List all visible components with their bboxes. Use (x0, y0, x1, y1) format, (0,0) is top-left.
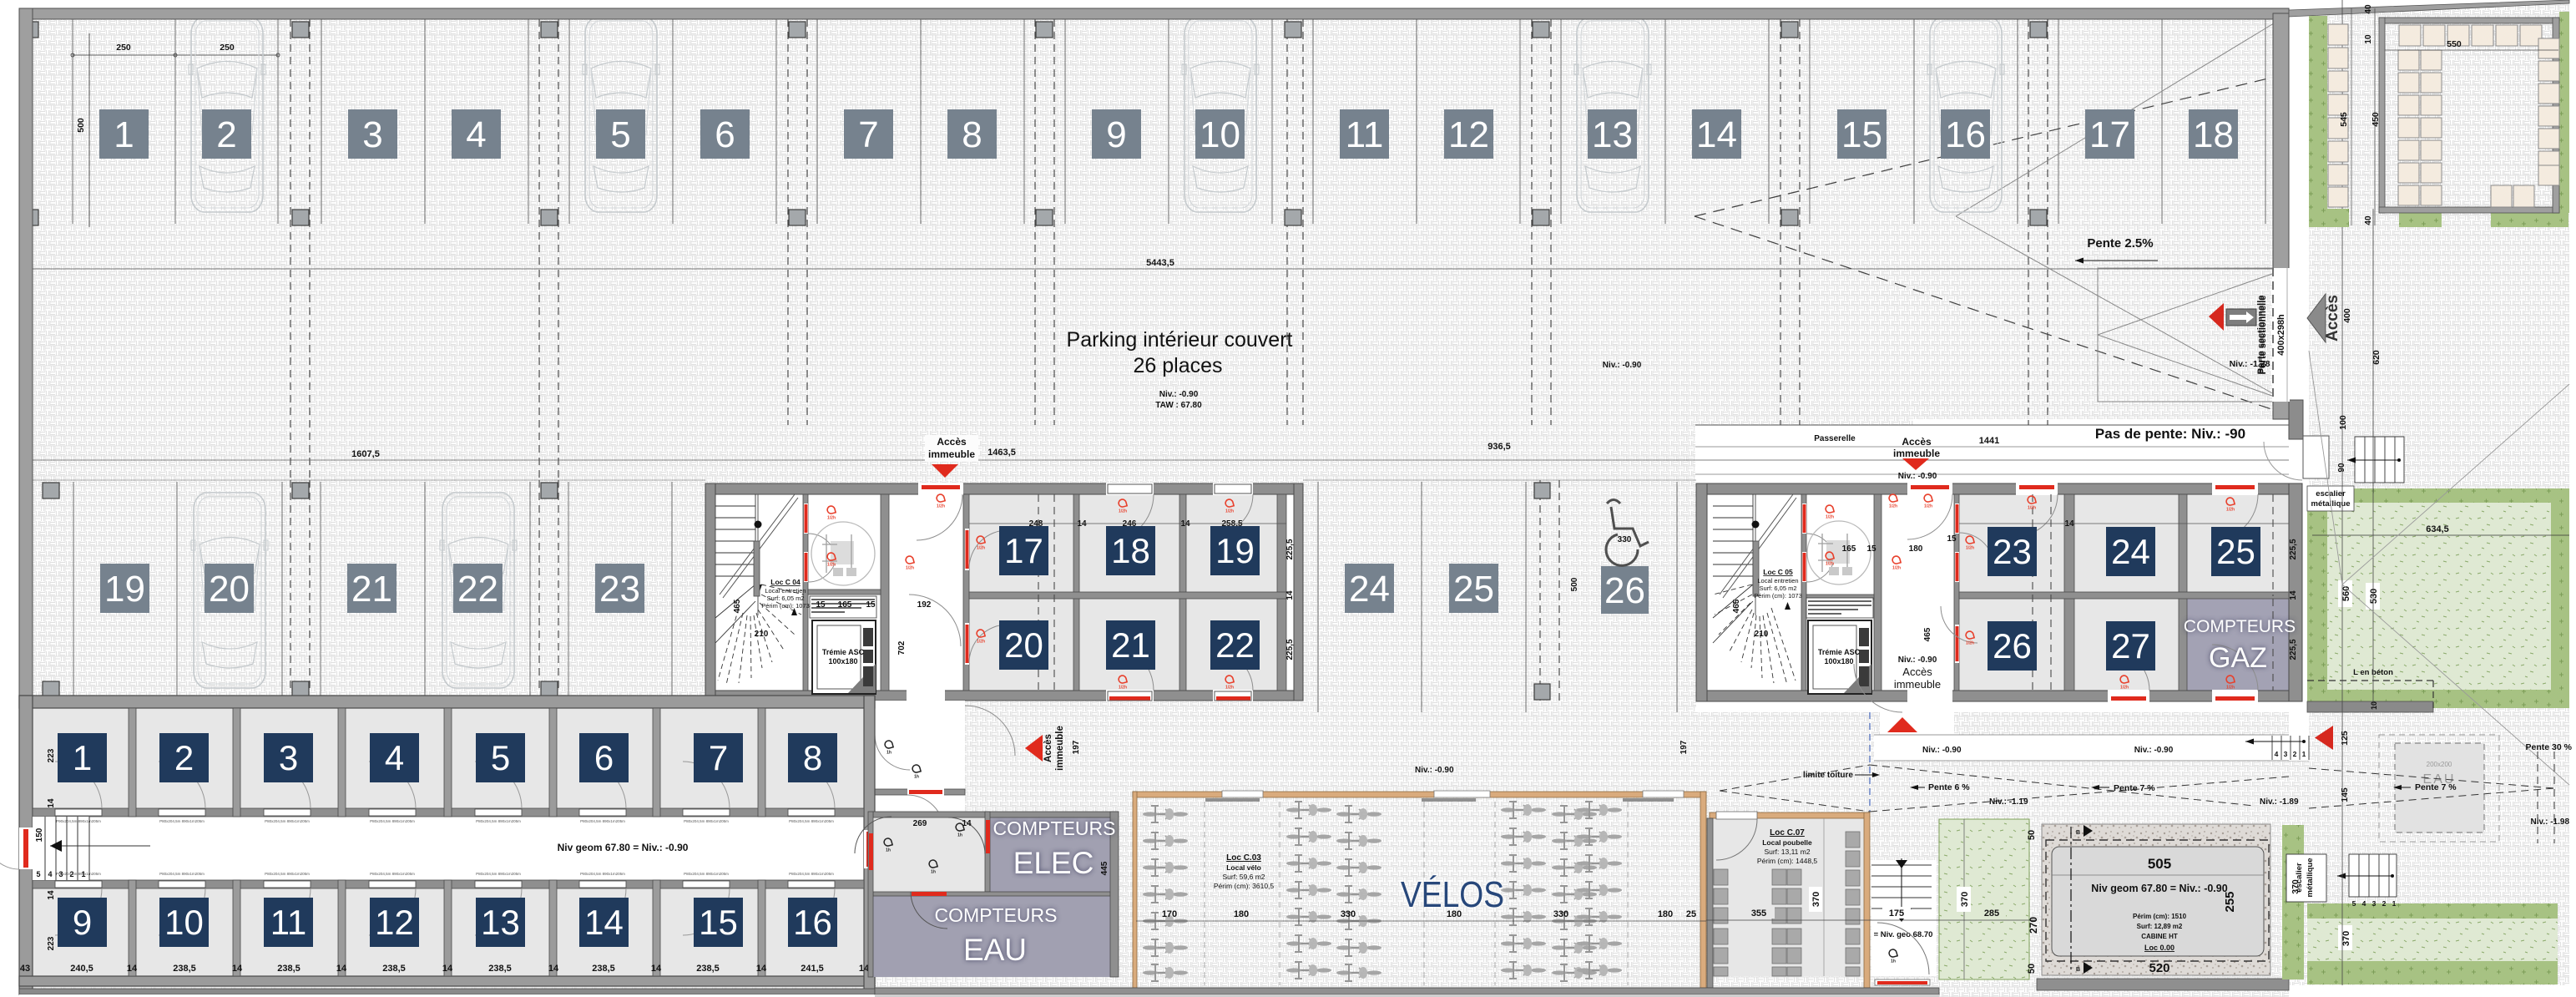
svg-text:Périm (cm): 1448,5: Périm (cm): 1448,5 (1757, 857, 1818, 865)
svg-text:165: 165 (838, 600, 852, 610)
svg-text:210: 210 (755, 630, 769, 639)
svg-text:Niv.: -0.90: Niv.: -0.90 (1415, 766, 1454, 775)
svg-text:Pente 7 %: Pente 7 % (2114, 783, 2155, 793)
svg-text:Loc C.07: Loc C.07 (1770, 828, 1805, 838)
svg-text:Accès: Accès (1902, 666, 1932, 678)
svg-text:Pente 30 %: Pente 30 % (2526, 742, 2573, 752)
svg-text:505: 505 (2148, 856, 2171, 872)
svg-text:21: 21 (351, 569, 392, 610)
svg-text:Périm (cm): 3610,5: Périm (cm): 3610,5 (1214, 882, 1275, 890)
svg-text:P80x204,5m 890x1m205m: P80x204,5m 890x1m205m (789, 872, 834, 876)
svg-text:5: 5 (36, 870, 40, 878)
svg-text:3: 3 (2284, 750, 2288, 758)
svg-text:Niv.: -0.90: Niv.: -0.90 (1898, 655, 1937, 665)
svg-text:Périm (cm): 1510: Périm (cm): 1510 (2133, 913, 2187, 920)
svg-text:25: 25 (1686, 909, 1696, 919)
svg-text:17: 17 (1004, 531, 1043, 570)
svg-text:465: 465 (1732, 599, 1741, 613)
svg-text:27: 27 (2111, 626, 2150, 666)
svg-text:223: 223 (47, 748, 56, 762)
svg-text:165: 165 (1842, 544, 1856, 554)
svg-text:1: 1 (73, 738, 92, 777)
svg-text:4: 4 (2362, 899, 2366, 908)
svg-text:15: 15 (1841, 114, 1882, 155)
svg-text:GAZ: GAZ (2209, 642, 2267, 674)
svg-text:P80x204,5m 890x1m205m: P80x204,5m 890x1m205m (159, 872, 205, 876)
svg-text:Pente 7 %: Pente 7 % (2415, 782, 2457, 792)
svg-text:Niv.: -0.90: Niv.: -0.90 (2134, 746, 2174, 755)
svg-text:250: 250 (116, 43, 131, 53)
svg-text:20: 20 (209, 569, 250, 610)
svg-text:450: 450 (2371, 112, 2381, 127)
svg-text:Niv.: -0.90: Niv.: -0.90 (1159, 390, 1199, 399)
svg-text:5: 5 (2352, 899, 2356, 908)
svg-text:14: 14 (2289, 590, 2298, 600)
svg-text:223: 223 (47, 936, 56, 950)
svg-text:Trémie ASC: Trémie ASC (1818, 648, 1861, 656)
svg-text:4: 4 (2275, 750, 2279, 758)
svg-text:Périm (cm): 1073: Périm (cm): 1073 (761, 602, 810, 610)
svg-text:immeuble: immeuble (1055, 726, 1065, 771)
svg-text:197: 197 (1679, 740, 1689, 754)
svg-text:Niv.: -0.90: Niv.: -0.90 (1898, 472, 1937, 481)
svg-text:22: 22 (457, 569, 498, 610)
svg-text:125: 125 (2340, 731, 2350, 746)
svg-text:8: 8 (962, 114, 982, 155)
svg-text:180: 180 (1447, 909, 1462, 919)
svg-text:Surf: 6,05 m2: Surf: 6,05 m2 (1759, 585, 1796, 592)
svg-text:22: 22 (1215, 625, 1255, 665)
svg-text:400: 400 (2342, 308, 2352, 323)
svg-text:40: 40 (2364, 4, 2373, 14)
svg-text:330: 330 (1618, 535, 1632, 544)
svg-text:23: 23 (1993, 532, 2032, 571)
svg-text:Surf: 12,89 m2: Surf: 12,89 m2 (2137, 923, 2183, 930)
svg-text:445: 445 (1100, 861, 1109, 875)
svg-text:Local entretien: Local entretien (1757, 577, 1798, 585)
svg-text:14: 14 (651, 964, 662, 974)
svg-text:9: 9 (73, 903, 92, 942)
svg-text:1: 1 (114, 114, 134, 155)
svg-text:1463,5: 1463,5 (987, 448, 1016, 458)
svg-text:4: 4 (466, 114, 486, 155)
svg-text:180: 180 (1234, 909, 1249, 919)
svg-text:936,5: 936,5 (1488, 442, 1511, 452)
svg-text:P80x204,5m 890x1m205m: P80x204,5m 890x1m205m (370, 819, 415, 823)
svg-text:500: 500 (76, 118, 86, 133)
svg-text:285: 285 (1984, 908, 1999, 919)
svg-text:370: 370 (2341, 931, 2351, 946)
svg-text:B: B (2076, 830, 2080, 836)
svg-text:P80x204,5m 890x1m205m: P80x204,5m 890x1m205m (580, 872, 625, 876)
svg-text:10: 10 (2370, 701, 2378, 710)
svg-text:Surf: 13,11 m2: Surf: 13,11 m2 (1764, 848, 1810, 856)
svg-text:175: 175 (1889, 908, 1904, 919)
svg-text:43: 43 (20, 964, 30, 974)
svg-text:550: 550 (2447, 39, 2462, 49)
svg-text:2: 2 (174, 738, 194, 777)
svg-text:Local poubelle: Local poubelle (1762, 838, 1812, 847)
svg-text:P80x204,5m 890x1m205m: P80x204,5m 890x1m205m (789, 819, 834, 823)
svg-text:702: 702 (897, 640, 907, 655)
svg-text:Accès: Accès (1902, 436, 1932, 448)
svg-text:COMPTEURS: COMPTEURS (993, 817, 1116, 839)
svg-text:immeuble: immeuble (1894, 678, 1941, 691)
svg-text:26: 26 (1993, 626, 2032, 666)
svg-text:Niv geom 67.80 = Niv.: -0.90: Niv geom 67.80 = Niv.: -0.90 (558, 842, 689, 853)
svg-text:Niv.: -0.90: Niv.: -0.90 (1922, 746, 1962, 755)
svg-text:Niv.: -1.89: Niv.: -1.89 (2260, 797, 2299, 807)
svg-text:métallique: métallique (2306, 858, 2315, 898)
svg-text:8: 8 (803, 738, 822, 777)
svg-text:17: 17 (2089, 114, 2130, 155)
svg-text:14: 14 (442, 964, 453, 974)
svg-text:Niv geom 67.80 = Niv.: -0.90: Niv geom 67.80 = Niv.: -0.90 (2091, 883, 2227, 894)
svg-text:2: 2 (2293, 750, 2297, 758)
svg-text:COMPTEURS: COMPTEURS (2184, 617, 2296, 636)
svg-text:225,5: 225,5 (1285, 639, 1295, 660)
svg-text:240,5: 240,5 (70, 964, 93, 974)
svg-text:Passerelle: Passerelle (1814, 434, 1856, 443)
svg-text:Loc C 05: Loc C 05 (1763, 568, 1793, 576)
svg-text:26 places: 26 places (1133, 354, 1222, 377)
svg-text:14: 14 (1285, 590, 1295, 600)
svg-text:241,5: 241,5 (801, 964, 824, 974)
svg-text:20: 20 (1004, 625, 1043, 665)
svg-text:Niv.: -1.98: Niv.: -1.98 (2531, 817, 2570, 827)
svg-text:3: 3 (362, 114, 382, 155)
svg-text:255: 255 (2223, 891, 2237, 912)
svg-text:200x200: 200x200 (2427, 761, 2452, 768)
svg-text:192: 192 (917, 600, 932, 610)
svg-text:5: 5 (491, 738, 510, 777)
svg-text:16: 16 (793, 903, 832, 942)
svg-text:5443,5: 5443,5 (1146, 258, 1174, 268)
svg-text:25: 25 (2216, 532, 2255, 571)
svg-text:Trémie ASC: Trémie ASC (822, 648, 865, 656)
svg-text:11: 11 (270, 903, 307, 942)
svg-text:197: 197 (1072, 740, 1081, 754)
svg-text:100x180: 100x180 (828, 657, 857, 666)
svg-text:238,5: 238,5 (696, 964, 720, 974)
svg-text:370: 370 (1811, 892, 1821, 907)
svg-text:18: 18 (1111, 531, 1150, 570)
svg-text:19: 19 (1215, 531, 1255, 570)
svg-text:7: 7 (709, 738, 728, 777)
svg-text:13: 13 (481, 903, 520, 942)
svg-text:24: 24 (2111, 532, 2150, 571)
svg-text:11: 11 (1346, 114, 1384, 155)
svg-text:634,5: 634,5 (2426, 524, 2449, 534)
svg-text:9: 9 (1106, 114, 1126, 155)
svg-text:23: 23 (599, 569, 640, 610)
svg-text:Accès: Accès (2324, 295, 2341, 342)
svg-text:355: 355 (1751, 908, 1766, 919)
svg-text:15: 15 (866, 600, 876, 610)
svg-text:14: 14 (47, 798, 56, 808)
svg-text:16: 16 (1945, 114, 1986, 155)
svg-text:Pas de pente: Niv.: -90: Pas de pente: Niv.: -90 (2095, 426, 2245, 442)
svg-text:180: 180 (1909, 544, 1923, 554)
svg-text:250: 250 (220, 43, 235, 53)
svg-text:P80x204,5m 890x1m205m: P80x204,5m 890x1m205m (684, 872, 729, 876)
svg-text:immeuble: immeuble (1893, 448, 1940, 459)
svg-text:1: 1 (2392, 899, 2397, 908)
svg-text:P80x204,5m 890x1m205m: P80x204,5m 890x1m205m (580, 819, 625, 823)
svg-text:Accès: Accès (937, 436, 967, 448)
svg-text:370: 370 (2291, 879, 2301, 894)
svg-text:15: 15 (1947, 534, 1957, 544)
svg-text:4: 4 (48, 870, 52, 878)
svg-text:Périm (cm): 1073: Périm (cm): 1073 (1754, 592, 1802, 600)
svg-text:50: 50 (2027, 830, 2037, 840)
svg-text:14: 14 (127, 964, 138, 974)
svg-text:15: 15 (816, 600, 826, 610)
svg-text:COMPTEURS: COMPTEURS (935, 904, 1058, 926)
svg-text:18: 18 (2193, 114, 2234, 155)
svg-text:620: 620 (2371, 350, 2382, 365)
svg-text:545: 545 (2339, 112, 2349, 127)
svg-text:14: 14 (47, 890, 56, 900)
svg-text:7: 7 (858, 114, 878, 155)
svg-text:15: 15 (1866, 544, 1876, 554)
svg-text:170: 170 (1162, 909, 1177, 919)
svg-text:Accès: Accès (1043, 734, 1053, 762)
svg-text:238,5: 238,5 (592, 964, 615, 974)
svg-text:330: 330 (1341, 909, 1356, 919)
svg-text:10: 10 (2364, 34, 2373, 44)
svg-text:4: 4 (385, 738, 404, 777)
svg-text:12: 12 (1448, 114, 1489, 155)
svg-text:Parking intérieur couvert: Parking intérieur couvert (1067, 328, 1293, 352)
svg-text:escalier: escalier (2316, 489, 2346, 498)
svg-text:238,5: 238,5 (382, 964, 406, 974)
svg-text:145: 145 (2340, 787, 2350, 802)
svg-text:40: 40 (2364, 215, 2373, 225)
svg-text:100x180: 100x180 (1824, 657, 1853, 666)
svg-text:225,5: 225,5 (2289, 639, 2298, 660)
svg-text:Loc 0.00: Loc 0.00 (2144, 944, 2174, 952)
svg-text:1607,5: 1607,5 (351, 449, 380, 459)
svg-text:225,5: 225,5 (2289, 539, 2298, 559)
svg-text:Niv.: -0.90: Niv.: -0.90 (1603, 361, 1642, 370)
svg-text:14: 14 (336, 964, 347, 974)
svg-text:14: 14 (1696, 114, 1737, 155)
svg-text:1: 1 (2302, 750, 2306, 758)
svg-text:269: 269 (913, 819, 927, 828)
svg-text:P80x204,5m 890x1m205m: P80x204,5m 890x1m205m (684, 819, 729, 823)
svg-text:225,5: 225,5 (1285, 539, 1295, 559)
svg-text:14: 14 (1180, 519, 1190, 529)
svg-text:15: 15 (699, 903, 738, 942)
svg-text:465: 465 (1923, 627, 1932, 641)
svg-text:B: B (2076, 967, 2080, 973)
svg-text:14: 14 (2064, 519, 2074, 529)
svg-text:14: 14 (1077, 519, 1087, 529)
svg-text:ELEC: ELEC (1013, 846, 1094, 880)
svg-text:Surf: 6,05 m2: Surf: 6,05 m2 (766, 595, 804, 602)
svg-text:Porte sectionnelle: Porte sectionnelle (2258, 296, 2268, 375)
svg-text:210: 210 (1755, 630, 1769, 639)
svg-text:24: 24 (1349, 569, 1390, 610)
svg-text:465: 465 (733, 599, 742, 613)
svg-text:370: 370 (1960, 892, 1970, 907)
svg-text:10: 10 (164, 903, 204, 942)
svg-text:6: 6 (594, 738, 614, 777)
svg-text:13: 13 (1592, 114, 1633, 155)
svg-text:P90x204,5m 890x1m205m: P90x204,5m 890x1m205m (56, 819, 101, 823)
svg-text:= Niv. geo 68.70: = Niv. geo 68.70 (1874, 930, 1933, 939)
svg-text:180: 180 (1658, 909, 1673, 919)
svg-text:50: 50 (2027, 964, 2037, 974)
svg-text:530: 530 (2369, 589, 2379, 604)
svg-text:Loc C.03: Loc C.03 (1226, 853, 1261, 863)
svg-text:Pente 2.5%: Pente 2.5% (2087, 236, 2153, 251)
svg-text:14: 14 (962, 819, 972, 828)
svg-text:21: 21 (1111, 625, 1150, 665)
svg-text:14: 14 (584, 903, 624, 942)
svg-text:Local entretien: Local entretien (765, 587, 806, 595)
svg-text:238,5: 238,5 (488, 964, 512, 974)
svg-text:2: 2 (2382, 899, 2387, 908)
svg-text:14: 14 (756, 964, 767, 974)
svg-text:3: 3 (2372, 899, 2376, 908)
svg-text:Surf: 59,6 m2: Surf: 59,6 m2 (1222, 873, 1265, 881)
svg-text:100: 100 (2338, 415, 2348, 430)
svg-text:5: 5 (610, 114, 630, 155)
svg-text:90: 90 (2337, 463, 2346, 473)
svg-text:26: 26 (1604, 570, 1645, 611)
svg-text:3: 3 (279, 738, 298, 777)
svg-text:6: 6 (715, 114, 735, 155)
svg-text:19: 19 (104, 569, 145, 610)
svg-text:P80x204,5m 890x1m205m: P80x204,5m 890x1m205m (56, 872, 101, 876)
svg-text:P80x204,5m 890x1m205m: P80x204,5m 890x1m205m (370, 872, 415, 876)
svg-text:EAU: EAU (963, 933, 1027, 967)
svg-text:immeuble: immeuble (928, 448, 975, 460)
svg-text:2: 2 (216, 114, 236, 155)
svg-text:P80x204,5m 890x1m205m: P80x204,5m 890x1m205m (265, 872, 310, 876)
svg-text:500: 500 (1570, 577, 1579, 591)
svg-text:14: 14 (548, 964, 559, 974)
svg-text:P80x204,5m 890x1m205m: P80x204,5m 890x1m205m (476, 872, 521, 876)
svg-text:238,5: 238,5 (173, 964, 196, 974)
svg-text:520: 520 (2149, 961, 2169, 975)
svg-text:14: 14 (232, 964, 243, 974)
svg-text:1441: 1441 (1979, 436, 1999, 446)
svg-text:330: 330 (1553, 909, 1568, 919)
svg-text:238,5: 238,5 (277, 964, 301, 974)
svg-text:25: 25 (1453, 569, 1494, 610)
svg-text:Pente 6 %: Pente 6 % (1928, 782, 1970, 792)
svg-text:400x298h: 400x298h (2276, 314, 2286, 356)
svg-text:Niv.: -1.19: Niv.: -1.19 (1989, 797, 2028, 807)
svg-text:150: 150 (35, 827, 44, 842)
svg-text:CABINE HT: CABINE HT (2141, 933, 2178, 940)
svg-text:P80x204,5m 890x1m205m: P80x204,5m 890x1m205m (159, 819, 205, 823)
svg-text:Local vélo: Local vélo (1226, 863, 1261, 872)
svg-text:P80x204,5m 890x1m205m: P80x204,5m 890x1m205m (476, 819, 521, 823)
svg-text:Loc C 04: Loc C 04 (770, 578, 801, 586)
svg-text:270: 270 (2028, 917, 2039, 934)
svg-text:10: 10 (1200, 114, 1240, 155)
svg-text:TAW : 67.80: TAW : 67.80 (1155, 401, 1202, 410)
svg-text:12: 12 (375, 903, 414, 942)
svg-text:P80x204,5m 890x1m205m: P80x204,5m 890x1m205m (265, 819, 310, 823)
